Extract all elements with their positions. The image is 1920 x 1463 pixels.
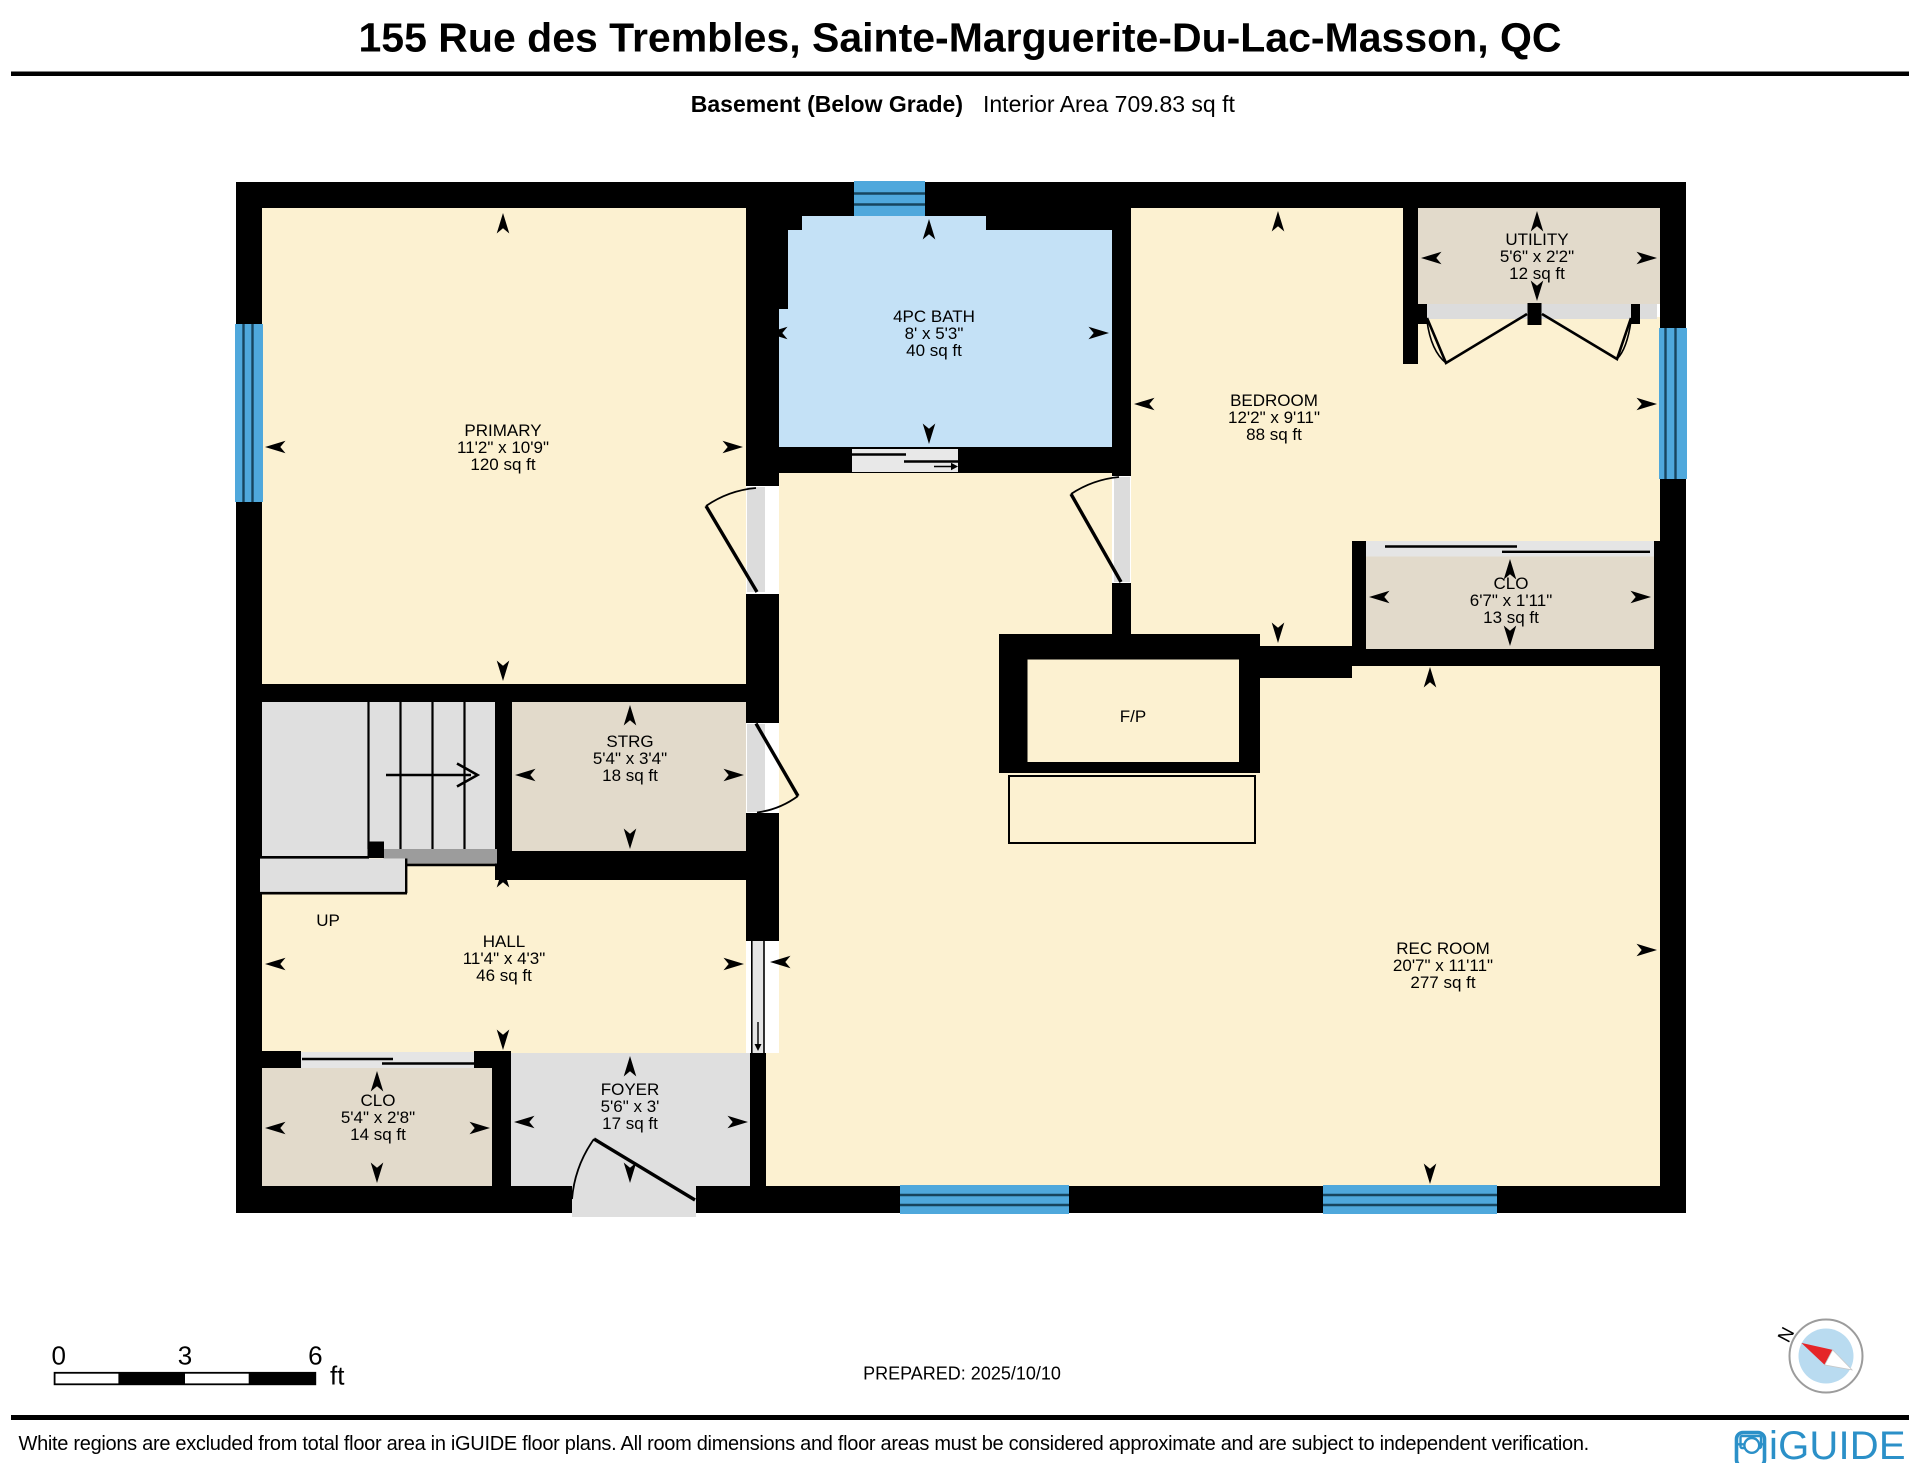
svg-text:46 sq ft: 46 sq ft: [476, 966, 532, 985]
svg-text:13 sq ft: 13 sq ft: [1483, 608, 1539, 627]
svg-text:PREPARED: 2025/10/10: PREPARED: 2025/10/10: [863, 1364, 1061, 1384]
svg-text:6: 6: [308, 1341, 322, 1371]
svg-text:12 sq ft: 12 sq ft: [1509, 264, 1565, 283]
svg-text:White regions are excluded fro: White regions are excluded from total fl…: [19, 1433, 1589, 1455]
svg-text:ft: ft: [330, 1361, 345, 1391]
svg-text:0: 0: [51, 1341, 65, 1371]
svg-text:18 sq ft: 18 sq ft: [602, 766, 658, 785]
svg-text:Interior Area 709.83 sq ft: Interior Area 709.83 sq ft: [983, 91, 1235, 117]
svg-text:40 sq ft: 40 sq ft: [906, 341, 962, 360]
svg-text:iGUIDE: iGUIDE: [1769, 1424, 1906, 1463]
svg-text:Basement (Below Grade): Basement (Below Grade): [691, 91, 963, 117]
svg-text:3: 3: [178, 1341, 192, 1371]
svg-text:120 sq ft: 120 sq ft: [470, 455, 535, 474]
svg-text:UP: UP: [316, 911, 340, 930]
svg-text:14 sq ft: 14 sq ft: [350, 1125, 406, 1144]
svg-text:88 sq ft: 88 sq ft: [1246, 425, 1302, 444]
svg-text:277 sq ft: 277 sq ft: [1410, 973, 1475, 992]
svg-text:17 sq ft: 17 sq ft: [602, 1114, 658, 1133]
svg-text:155 Rue des Trembles, Sainte-M: 155 Rue des Trembles, Sainte-Marguerite-…: [359, 15, 1562, 61]
svg-text:F/P: F/P: [1120, 707, 1146, 726]
